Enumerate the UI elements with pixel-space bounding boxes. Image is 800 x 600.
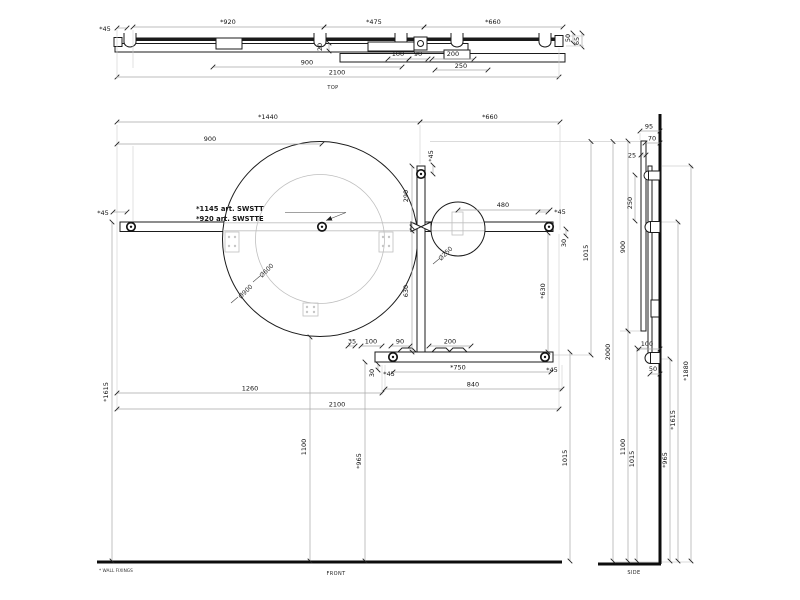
dim-label: *660 bbox=[482, 113, 498, 121]
dim-label: *965 bbox=[355, 453, 363, 469]
dim-label: 900 bbox=[619, 241, 627, 253]
view-title-top: TOP bbox=[326, 85, 338, 91]
dim-label: 1015 bbox=[628, 451, 636, 468]
vertical-bar bbox=[417, 166, 425, 357]
dim-label: 250 bbox=[455, 62, 467, 70]
dim-label: *45 bbox=[383, 370, 395, 378]
dim-label: 250 bbox=[626, 197, 634, 209]
slider-clip bbox=[432, 348, 450, 352]
footnote: * WALL FIXINGS bbox=[99, 568, 133, 574]
dim-label: 200 bbox=[444, 338, 456, 346]
top-view: *45 *920 *475 *660 20 100 90 200 250 900… bbox=[99, 18, 584, 91]
dim-label: 100 bbox=[392, 50, 404, 58]
front-view: *1440 *660 900 *45 *1145 art. SWSTT *920… bbox=[97, 113, 613, 577]
dim-label: 630 bbox=[402, 285, 410, 297]
bottom-rail bbox=[375, 352, 553, 362]
front-view-geometry bbox=[97, 142, 562, 563]
technical-drawing: *45 *920 *475 *660 20 100 90 200 250 900… bbox=[0, 0, 800, 600]
rail-hook-side bbox=[645, 222, 660, 233]
dim-label: *1615 bbox=[102, 382, 110, 402]
lower-hook-side bbox=[645, 353, 660, 364]
end-cap-left bbox=[114, 38, 122, 47]
dim-label: 2100 bbox=[329, 401, 346, 409]
dim-label: 25 bbox=[628, 152, 636, 160]
dim-label: 290 bbox=[402, 190, 410, 202]
wall-hook-icon bbox=[451, 33, 463, 47]
dim-label: *965 bbox=[661, 452, 669, 468]
dim-label: 100 bbox=[365, 338, 377, 346]
bar-top-bolt bbox=[417, 170, 425, 178]
dim-label: *1440 bbox=[258, 113, 278, 121]
art-number-line1: *1145 art. SWSTT bbox=[196, 205, 264, 213]
dim-label: *45 bbox=[427, 150, 435, 162]
slider-clip bbox=[449, 348, 467, 352]
slider-clip bbox=[398, 348, 416, 352]
dim-label: 30 bbox=[560, 239, 568, 247]
dim-label: 840 bbox=[467, 381, 479, 389]
dim-label: *630 bbox=[539, 283, 547, 299]
dim-label: 65 bbox=[573, 37, 581, 45]
dim-label: 50 bbox=[649, 365, 657, 373]
wall-hook-icon bbox=[124, 33, 136, 47]
side-view-geometry bbox=[598, 114, 661, 564]
center-bolt bbox=[318, 223, 326, 231]
dim-label: 95 bbox=[645, 123, 653, 131]
view-title-front: FRONT bbox=[326, 571, 346, 577]
dim-label: 900 bbox=[301, 59, 313, 67]
slider-block bbox=[216, 38, 242, 49]
top-view-geometry bbox=[114, 33, 565, 62]
dim-label: 20 bbox=[316, 43, 324, 51]
vertical-bar-section bbox=[414, 37, 427, 50]
dim-label: 100 bbox=[641, 340, 653, 348]
wall-rail-top bbox=[125, 38, 562, 42]
side-view: 95 70 25 250 900 2000 100 50 1100 1015 *… bbox=[598, 114, 693, 576]
dim-label: 1015 bbox=[582, 245, 590, 262]
wall-hook-icon bbox=[539, 33, 551, 47]
rail-bolt bbox=[127, 223, 135, 231]
slider-block-side bbox=[651, 300, 659, 317]
dim-label: 2000 bbox=[604, 344, 612, 361]
dim-label: *475 bbox=[366, 18, 382, 26]
rail-bolt bbox=[545, 223, 553, 231]
dim-label: 1100 bbox=[619, 439, 627, 456]
dim-label: 90 bbox=[414, 50, 422, 58]
dim-label: *920 bbox=[220, 18, 236, 26]
dim-label: 1015 bbox=[561, 450, 569, 467]
bar-side bbox=[648, 166, 652, 357]
dim-label: 480 bbox=[497, 201, 509, 209]
bottom-rail-bolt bbox=[541, 353, 549, 361]
dim-label: 70 bbox=[648, 135, 656, 143]
round-mirror bbox=[223, 142, 418, 337]
mirror-panel-side bbox=[641, 141, 646, 331]
dim-label: 200 bbox=[447, 50, 459, 58]
view-title-side: SIDE bbox=[627, 570, 640, 576]
dim-label: 1260 bbox=[242, 385, 259, 393]
dim-label: *750 bbox=[450, 364, 466, 372]
dim-label: 90 bbox=[396, 338, 404, 346]
dim-label: 2100 bbox=[329, 69, 346, 77]
dim-label: *1880 bbox=[682, 361, 690, 381]
art-number-line2: *920 art. SWSTTE bbox=[196, 215, 264, 223]
dim-label: *1615 bbox=[669, 410, 677, 430]
dim-label: 900 bbox=[204, 135, 216, 143]
dim-label: 35 bbox=[348, 338, 356, 346]
dim-label: *45 bbox=[99, 25, 111, 33]
dim-label: *45 bbox=[546, 366, 558, 374]
bottom-rail-bolt bbox=[389, 353, 397, 361]
dim-label: 50 bbox=[564, 34, 572, 42]
dim-label: 30 bbox=[368, 369, 376, 377]
end-cap-right bbox=[555, 36, 563, 47]
dim-label: *45 bbox=[554, 208, 566, 216]
dim-label: *45 bbox=[97, 209, 109, 217]
dim-label: *660 bbox=[485, 18, 501, 26]
dim-label: 1100 bbox=[300, 439, 308, 456]
top-bracket-side bbox=[644, 171, 660, 180]
